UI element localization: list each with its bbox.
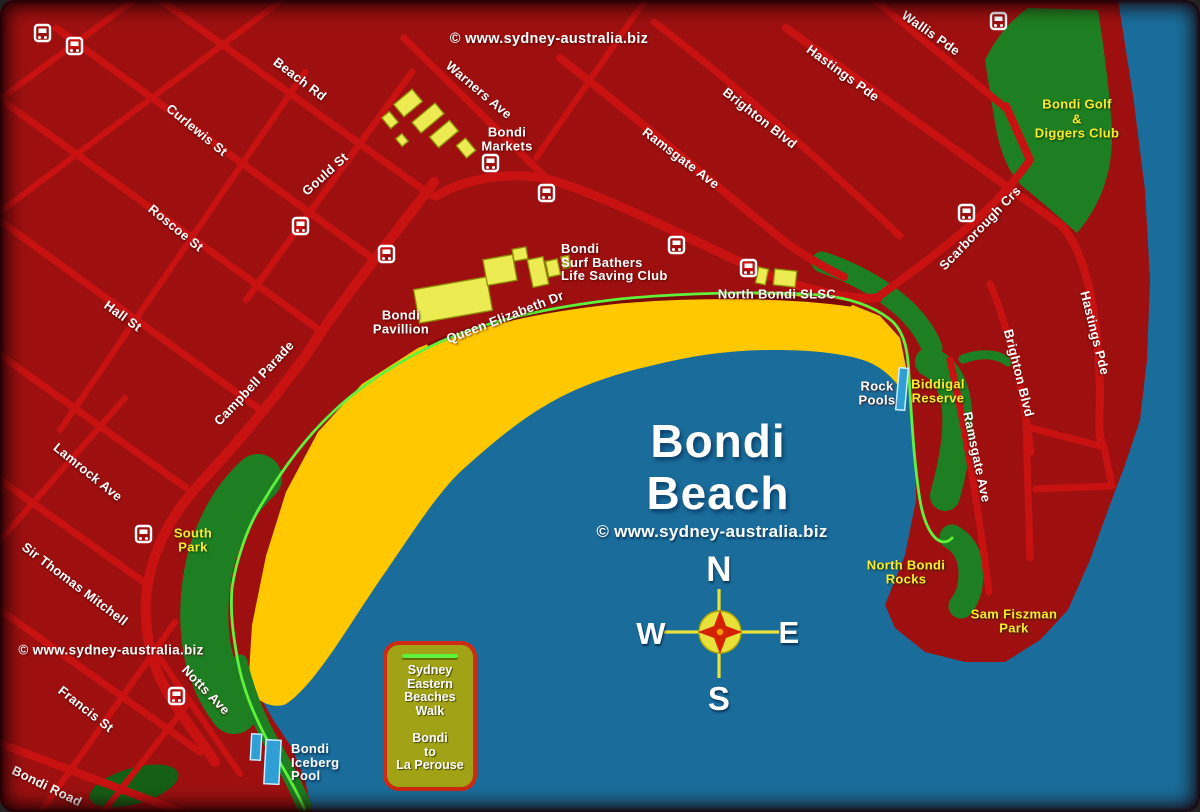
- place-label-biddigal-reserve: Biddigal Reserve: [911, 378, 965, 405]
- place-label-south-park: South Park: [174, 527, 212, 554]
- compass-west-label: W: [636, 616, 666, 652]
- place-label-bondi-pavillion: Bondi Pavillion: [373, 309, 429, 336]
- iceberg-pool-marker: [264, 740, 281, 785]
- place-label-surf-bathers: Bondi Surf Bathers Life Saving Club: [561, 242, 668, 283]
- compass-south-label: S: [708, 680, 730, 718]
- compass-north-label: N: [706, 550, 732, 590]
- place-label-north-bondi-slsc: North Bondi SLSC: [718, 287, 836, 302]
- place-label-bondi-golf: Bondi Golf & Diggers Club: [1035, 97, 1120, 141]
- place-label-rock-pools: Rock Pools: [859, 380, 896, 407]
- place-label-bondi-iceberg-pool: Bondi Iceberg Pool: [291, 742, 339, 783]
- iceberg-pool-marker: [250, 734, 261, 760]
- copyright-center: © www.sydney-australia.biz: [596, 522, 827, 542]
- map-title: Bondi Beach: [646, 415, 789, 519]
- walk-path-sample-line: [402, 654, 458, 658]
- place-label-sam-fiszman-park: Sam Fiszman Park: [971, 608, 1057, 635]
- copyright-bottom: © www.sydney-australia.biz: [18, 643, 203, 658]
- legend-box: Sydney Eastern Beaches Walk Bondi to La …: [383, 641, 477, 791]
- north-bondi-slsc-buildings: [755, 267, 796, 287]
- place-label-north-bondi-rocks: North Bondi Rocks: [867, 559, 945, 586]
- place-label-bondi-markets: Bondi Markets: [481, 126, 532, 153]
- bondi-beach-map: Beach Rd Curlewis St Roscoe St Gould St …: [0, 0, 1200, 812]
- compass-east-label: E: [779, 615, 800, 651]
- copyright-top: © www.sydney-australia.biz: [450, 31, 648, 47]
